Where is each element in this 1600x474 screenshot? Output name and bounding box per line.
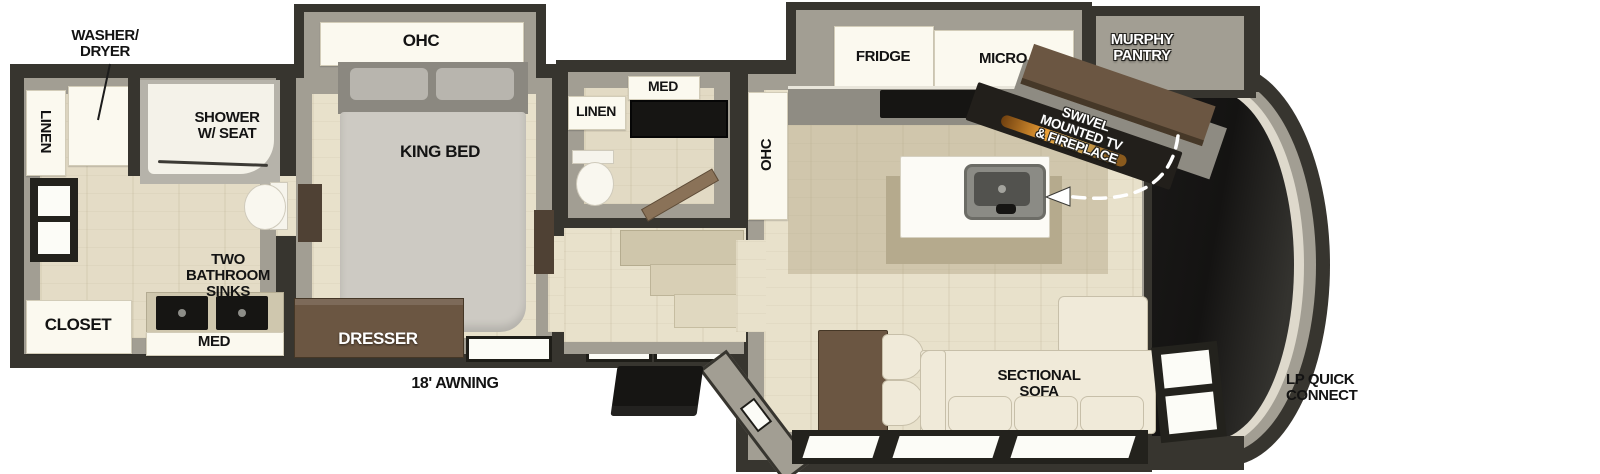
annotation-overlay xyxy=(0,0,1600,474)
rv-floorplan-canvas: WASHER/ DRYER LINEN SHOWER W/ SEAT TWO B… xyxy=(0,0,1600,474)
washer-pointer-line xyxy=(98,64,110,120)
swivel-arrow-head xyxy=(1046,187,1070,206)
swivel-arc-dashed xyxy=(1066,136,1178,198)
